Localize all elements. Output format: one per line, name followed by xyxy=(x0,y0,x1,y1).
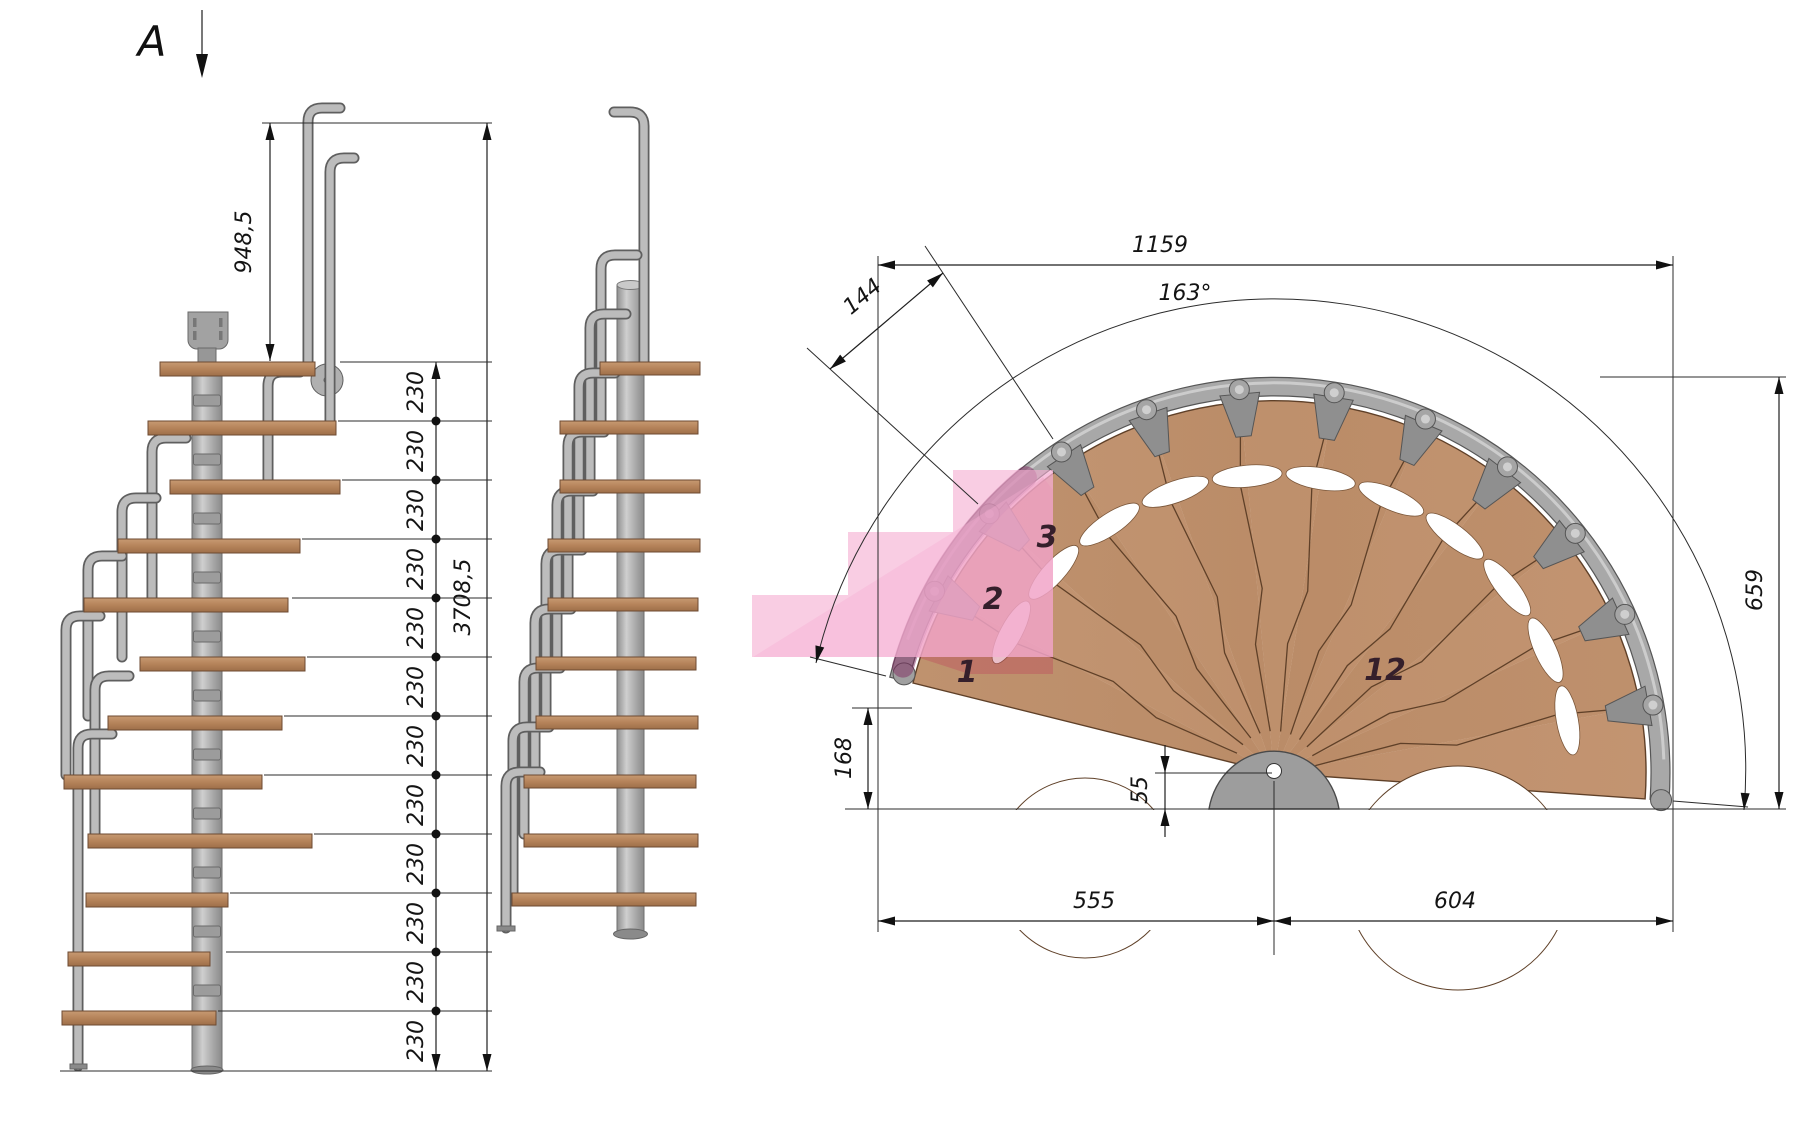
rise-label: 230 xyxy=(404,489,429,531)
rise-label: 230 xyxy=(404,430,429,472)
pole-spacer xyxy=(194,395,221,406)
side-view-front xyxy=(497,112,700,939)
baluster-knob-top xyxy=(1571,529,1580,538)
section-marker: A xyxy=(135,10,208,78)
rise-label: 230 xyxy=(404,371,429,413)
handrail-post-left-3-outline xyxy=(152,438,186,598)
handrail-foot xyxy=(70,1064,87,1069)
dim-chain-dot xyxy=(432,594,441,603)
step-highlight-overlay xyxy=(752,470,1053,657)
dim-chain-dot xyxy=(432,830,441,839)
pole-spacer xyxy=(194,808,221,819)
handrail-end-right xyxy=(1651,790,1672,811)
tread-number-12: 12 xyxy=(1364,653,1406,688)
bracket-slot xyxy=(193,318,197,327)
dim-chain-dot xyxy=(432,417,441,426)
pole-spacer xyxy=(194,690,221,701)
ext-line-144-b xyxy=(925,246,1053,439)
tread-front-8 xyxy=(524,775,696,788)
bracket-slot xyxy=(219,318,223,327)
dim-label-604: 604 xyxy=(1434,889,1476,914)
baluster-knob-top xyxy=(1648,701,1657,710)
pole-spacer xyxy=(194,867,221,878)
dim-label-948: 948,5 xyxy=(232,211,257,274)
highlight-step-2 xyxy=(848,532,1053,595)
rise-label: 230 xyxy=(404,725,429,767)
baluster-knob-top xyxy=(1620,610,1629,619)
dim-chain-dot xyxy=(432,712,441,721)
tread-side-11 xyxy=(68,952,210,966)
dim-chain-dot xyxy=(432,948,441,957)
tread-front-4 xyxy=(548,539,700,552)
pole-base xyxy=(191,1066,223,1074)
baluster-knob-top xyxy=(1235,385,1244,394)
rise-label: 230 xyxy=(404,961,429,1003)
rise-label: 230 xyxy=(404,843,429,885)
dim-label-total-height: 3708,5 xyxy=(451,559,476,636)
tread-side-1 xyxy=(160,362,315,376)
bracket-slot xyxy=(219,331,223,340)
tread-side-3 xyxy=(170,480,340,494)
tread-front-9 xyxy=(524,834,698,847)
dim-label-1159: 1159 xyxy=(1132,233,1188,258)
rise-label: 230 xyxy=(404,607,429,649)
dim-label-168: 168 xyxy=(832,737,857,779)
rise-label: 230 xyxy=(404,666,429,708)
section-marker-label: A xyxy=(135,17,167,66)
baluster-knob-top xyxy=(1057,447,1066,456)
tread-side-8 xyxy=(64,775,262,789)
section-arrow-head xyxy=(196,54,208,78)
tread-front-1 xyxy=(600,362,700,375)
dim-chain-dot xyxy=(432,535,441,544)
handrail-post-left-7-outline xyxy=(95,676,129,834)
below-baseline-mask xyxy=(820,810,1800,930)
tread-side-12 xyxy=(62,1011,216,1025)
tread-side-4 xyxy=(118,539,300,553)
dim-line-144 xyxy=(830,273,943,369)
dim-chain-dot xyxy=(432,1007,441,1016)
pole-spacer xyxy=(194,749,221,760)
tread-side-5 xyxy=(84,598,288,612)
dim-label-555: 555 xyxy=(1073,889,1115,914)
wall-bracket xyxy=(188,312,228,349)
tread-side-9 xyxy=(88,834,312,848)
tread-side-6 xyxy=(140,657,305,671)
baluster-knob-top xyxy=(1142,405,1151,414)
tread-front-3 xyxy=(560,480,700,493)
tread-side-2 xyxy=(148,421,336,435)
tread-front-6 xyxy=(536,657,696,670)
dim-chain-dot xyxy=(432,476,441,485)
rise-label: 230 xyxy=(404,784,429,826)
dim-label-55: 55 xyxy=(1128,776,1153,804)
tread-front-7 xyxy=(536,716,698,729)
pole-spacer xyxy=(194,572,221,583)
tread-front-5 xyxy=(548,598,698,611)
rise-label: 230 xyxy=(404,902,429,944)
pole-spacer xyxy=(194,513,221,524)
tread-front-2 xyxy=(560,421,698,434)
dim-label-659: 659 xyxy=(1743,569,1768,611)
tread-number-3: 3 xyxy=(1037,520,1058,555)
pole-spacer xyxy=(194,985,221,996)
rise-label: 230 xyxy=(404,548,429,590)
dim-label-163: 163° xyxy=(1159,281,1212,306)
tread-side-7 xyxy=(108,716,282,730)
dim-chain-dot xyxy=(432,653,441,662)
baluster-knob-top xyxy=(1503,462,1512,471)
side-view-left xyxy=(62,108,354,1074)
highlight-step-1 xyxy=(752,595,1053,657)
dim-chain-dot xyxy=(432,771,441,780)
dim-chain-dot xyxy=(432,889,441,898)
rise-label: 230 xyxy=(404,1020,429,1062)
pole-spacer xyxy=(194,454,221,465)
pole-spacer xyxy=(194,926,221,937)
ext-radial-right xyxy=(1673,801,1748,807)
pole-base-front xyxy=(614,929,648,939)
tread-side-10 xyxy=(86,893,228,907)
staircase-drawing: A 948,5 xyxy=(0,0,1800,1122)
technical-drawing-sheet: A 948,5 xyxy=(0,0,1800,1122)
pole-spacer xyxy=(194,631,221,642)
bracket-slot xyxy=(193,331,197,340)
ext-radial-left xyxy=(810,657,886,676)
dim-label-144: 144 xyxy=(839,274,887,320)
handrail-foot-front xyxy=(497,926,515,931)
tread-number-2: 2 xyxy=(983,582,1004,617)
pole-hole xyxy=(1267,764,1282,779)
tread-number-1: 1 xyxy=(957,655,978,690)
tread-front-10 xyxy=(512,893,696,906)
baluster-knob-top xyxy=(1421,415,1430,424)
baluster-knob-top xyxy=(1330,388,1339,397)
